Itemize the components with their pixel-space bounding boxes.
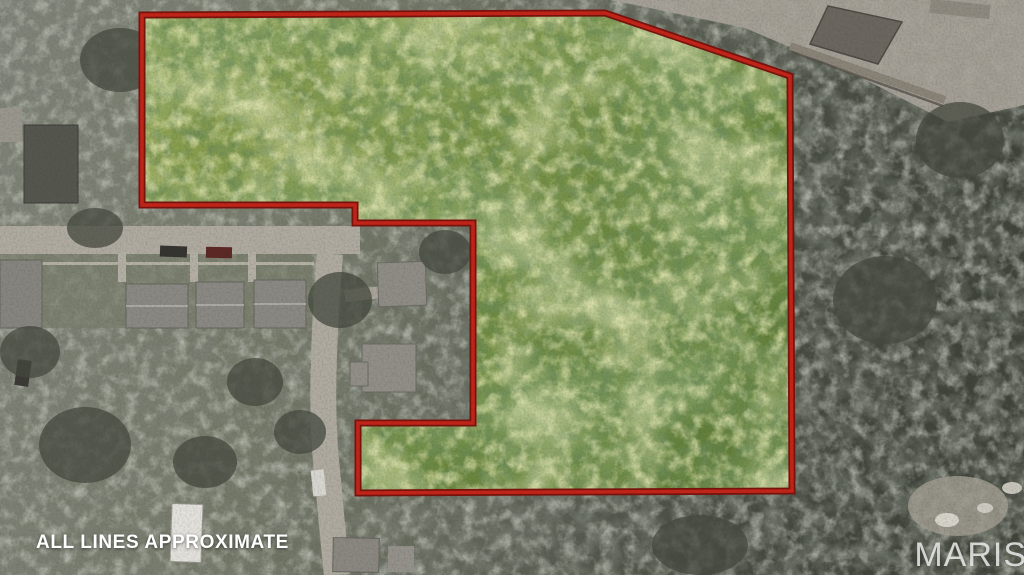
aerial-photo: ALL LINES APPROXIMATE MARIS xyxy=(0,0,1024,575)
maris-watermark: MARIS xyxy=(914,536,1024,575)
photo-grain xyxy=(0,0,1024,575)
aerial-photo-canvas xyxy=(0,0,1024,575)
disclaimer-text: ALL LINES APPROXIMATE xyxy=(36,532,289,554)
